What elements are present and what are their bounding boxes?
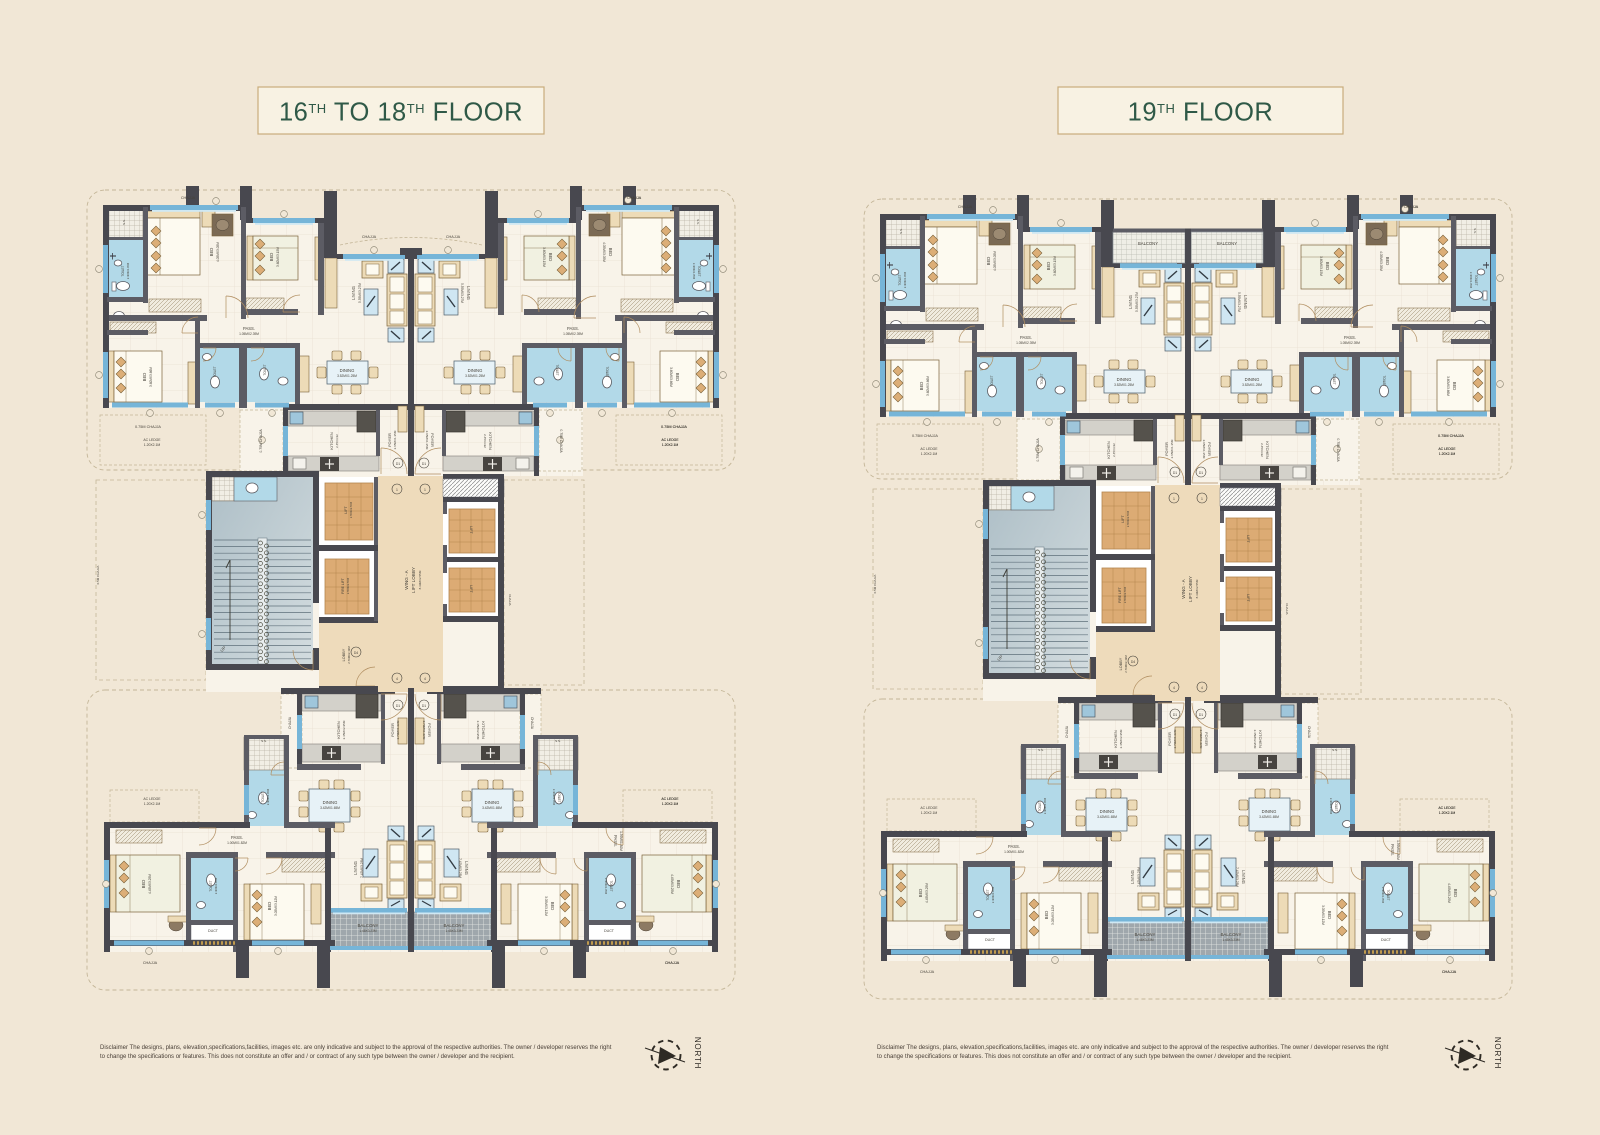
svg-text:1: 1 — [1201, 497, 1203, 501]
svg-text:2.40MX1.05M: 2.40MX1.05M — [903, 272, 907, 288]
svg-text:BED: BED — [548, 253, 553, 262]
svg-text:2.79MX1.22M: 2.79MX1.22M — [1199, 730, 1203, 749]
svg-text:BED: BED — [209, 248, 214, 257]
svg-text:1.20X2.1M: 1.20X2.1M — [921, 452, 938, 456]
svg-text:TOILET: TOILET — [1474, 274, 1478, 285]
svg-text:1.20X2.1M: 1.20X2.1M — [1439, 811, 1456, 815]
svg-text:4.05MX3.05M: 4.05MX3.05M — [602, 242, 606, 262]
svg-text:FOYER: FOYER — [1207, 442, 1212, 456]
svg-text:3.52MX1.25M: 3.52MX1.25M — [1242, 383, 1262, 387]
svg-text:KITCHEN: KITCHEN — [1258, 730, 1263, 748]
svg-text:TOILET: TOILET — [209, 880, 213, 891]
svg-text:FOYER: FOYER — [387, 433, 392, 447]
svg-text:TOILET: TOILET — [1040, 373, 1044, 384]
svg-text:DINING: DINING — [468, 368, 483, 373]
svg-text:BED: BED — [142, 373, 147, 382]
svg-text:8.39MX2.55M: 8.39MX2.55M — [418, 570, 422, 589]
svg-text:LIVING: LIVING — [1243, 295, 1248, 309]
svg-text:LIVING: LIVING — [464, 861, 469, 875]
svg-text:AC LEDGE: AC LEDGE — [661, 797, 679, 801]
svg-text:S.S.: S.S. — [1473, 228, 1477, 234]
svg-text:LIFT LOBBY: LIFT LOBBY — [1188, 576, 1193, 602]
svg-text:BALCONY: BALCONY — [1135, 932, 1156, 937]
svg-text:PASS.: PASS. — [1020, 335, 1032, 340]
svg-text:1.05MX2.39M: 1.05MX2.39M — [1340, 341, 1360, 345]
svg-text:2.65MX1.35M: 2.65MX1.35M — [1202, 440, 1206, 459]
svg-text:BALCONY: BALCONY — [1221, 932, 1242, 937]
svg-text:1.48X3.23M: 1.48X3.23M — [1136, 938, 1154, 942]
svg-text:DINING: DINING — [485, 800, 500, 805]
svg-text:4.05MX3.05M: 4.05MX3.05M — [216, 242, 220, 262]
svg-text:TOILET: TOILET — [213, 366, 217, 377]
svg-text:BED: BED — [608, 248, 613, 257]
svg-text:2.45X3.92: 2.45X3.92 — [1260, 443, 1264, 457]
svg-text:BED: BED — [986, 257, 991, 266]
svg-text:CHAJJA: CHAJJA — [143, 961, 158, 965]
svg-text:3.42MX1.65M: 3.42MX1.65M — [1259, 815, 1279, 819]
svg-text:4.05MX3.05M: 4.05MX3.05M — [993, 251, 997, 271]
svg-text:3.05MX3.12M: 3.05MX3.12M — [1321, 905, 1325, 925]
svg-text:1.00MX1.82M: 1.00MX1.82M — [227, 841, 247, 845]
svg-text:1.05MX2.39M: 1.05MX2.39M — [1016, 341, 1036, 345]
svg-text:PASS.: PASS. — [567, 326, 579, 331]
svg-text:D4: D4 — [354, 651, 358, 655]
svg-text:1.48X3.23M: 1.48X3.23M — [1222, 938, 1240, 942]
svg-text:D1: D1 — [1173, 471, 1177, 475]
svg-text:BED: BED — [269, 253, 274, 262]
svg-text:TOILET: TOILET — [609, 880, 613, 891]
svg-text:4.45MX3.25M: 4.45MX3.25M — [1447, 883, 1451, 903]
svg-text:2.55MX2.55M: 2.55MX2.55M — [346, 578, 350, 594]
svg-text:LIFT: LIFT — [1121, 515, 1125, 523]
svg-text:0.75M CHAJJA: 0.75M CHAJJA — [135, 425, 161, 429]
svg-text:7.42MX3.23M: 7.42MX3.23M — [1235, 867, 1239, 887]
svg-text:2.79MX1.22M: 2.79MX1.22M — [396, 720, 400, 739]
svg-text:BED: BED — [918, 889, 923, 898]
svg-text:WING - A: WING - A — [404, 569, 409, 589]
svg-text:AC LEDGE: AC LEDGE — [143, 797, 161, 801]
svg-text:7.42MX3.23M: 7.42MX3.23M — [360, 858, 364, 878]
svg-text:CHAJJA: CHAJJA — [1285, 603, 1289, 614]
svg-text:FOYER: FOYER — [427, 723, 432, 737]
svg-text:DUCT: DUCT — [208, 929, 219, 933]
svg-text:D1: D1 — [1199, 713, 1203, 717]
svg-text:0.75M CHAJJA: 0.75M CHAJJA — [661, 425, 687, 429]
svg-text:0.75M CHAJJA: 0.75M CHAJJA — [1336, 438, 1340, 462]
svg-text:2.79MX2.19M: 2.79MX2.19M — [1124, 655, 1128, 673]
svg-text:AC LEDGE: AC LEDGE — [143, 438, 161, 442]
svg-text:3.60MX3.66M: 3.60MX3.66M — [669, 367, 673, 387]
svg-text:PASS.: PASS. — [613, 835, 618, 847]
svg-text:LIVING: LIVING — [1128, 295, 1133, 309]
svg-text:1.59MX1.82M: 1.59MX1.82M — [619, 831, 623, 851]
svg-text:TOILET: TOILET — [1332, 373, 1336, 384]
svg-text:0.75M CHAJJA: 0.75M CHAJJA — [912, 434, 938, 438]
svg-text:TOILET: TOILET — [557, 791, 561, 802]
svg-text:D4: D4 — [1131, 660, 1135, 664]
svg-text:0.5M CHAJJA: 0.5M CHAJJA — [96, 566, 100, 585]
svg-text:D1: D1 — [1199, 471, 1203, 475]
svg-text:FOYER: FOYER — [1167, 732, 1172, 746]
svg-text:0.75M CHAJJA: 0.75M CHAJJA — [1036, 438, 1040, 462]
svg-text:KITCHEN: KITCHEN — [1113, 730, 1118, 748]
svg-text:2.45MX2.95M: 2.45MX2.95M — [1119, 729, 1123, 748]
svg-text:FIRE LIFT: FIRE LIFT — [341, 578, 345, 594]
svg-text:S.S.: S.S. — [899, 228, 903, 234]
svg-text:BED: BED — [1385, 257, 1390, 266]
svg-text:1.59MX1.82M: 1.59MX1.82M — [1396, 840, 1400, 860]
svg-text:1.20X2.1M: 1.20X2.1M — [662, 802, 679, 806]
svg-text:4.45MX3.25M: 4.45MX3.25M — [148, 874, 152, 894]
svg-text:LIFT: LIFT — [469, 585, 473, 593]
svg-text:TOILET: TOILET — [555, 364, 559, 375]
svg-text:CHAJJA: CHAJJA — [1065, 725, 1069, 738]
svg-text:AC LEDGE: AC LEDGE — [920, 447, 938, 451]
svg-text:S.S.: S.S. — [1038, 748, 1044, 752]
svg-text:2.45MX2.95M: 2.45MX2.95M — [476, 721, 480, 740]
svg-text:DINING: DINING — [1100, 809, 1115, 814]
svg-text:7.42MX3.23M: 7.42MX3.23M — [1137, 867, 1141, 887]
svg-text:3.52MX1.25M: 3.52MX1.25M — [465, 374, 485, 378]
svg-text:BALCONY: BALCONY — [358, 923, 379, 928]
svg-text:DINING: DINING — [1262, 809, 1277, 814]
svg-text:5.55MX3.27M: 5.55MX3.27M — [460, 283, 464, 303]
svg-text:3.05MX3.12M: 3.05MX3.12M — [274, 896, 278, 916]
svg-text:5.55MX3.27M: 5.55MX3.27M — [1237, 292, 1241, 312]
svg-text:1.20X2.1M: 1.20X2.1M — [144, 443, 161, 447]
svg-text:WING - A: WING - A — [1181, 578, 1186, 598]
svg-text:3.52MX1.25M: 3.52MX1.25M — [337, 374, 357, 378]
svg-text:BED: BED — [267, 902, 272, 911]
svg-text:0.5M CHAJJA: 0.5M CHAJJA — [873, 575, 877, 594]
svg-text:4: 4 — [424, 677, 426, 681]
svg-text:CHAJJA: CHAJJA — [958, 205, 973, 209]
svg-text:3.52MX1.25M: 3.52MX1.25M — [1114, 383, 1134, 387]
svg-text:2.45X3.92: 2.45X3.92 — [1112, 443, 1116, 457]
svg-text:2.55MX2.55M: 2.55MX2.55M — [1126, 511, 1130, 527]
svg-text:2.40MX1.05M: 2.40MX1.05M — [126, 263, 130, 279]
svg-text:BED: BED — [919, 382, 924, 391]
svg-text:NORTH: NORTH — [1493, 1037, 1502, 1069]
svg-text:BED: BED — [675, 373, 680, 382]
svg-text:1.20X2.1M: 1.20X2.1M — [144, 802, 161, 806]
svg-text:2.79MX2.19M: 2.79MX2.19M — [347, 646, 351, 664]
svg-text:CHAJJA: CHAJJA — [665, 961, 680, 965]
svg-text:FOYER: FOYER — [390, 723, 395, 737]
svg-text:KITCHEN: KITCHEN — [488, 432, 493, 450]
svg-text:BED: BED — [550, 902, 555, 911]
svg-text:3.60MX3.66M: 3.60MX3.66M — [149, 367, 153, 387]
svg-text:D1: D1 — [1173, 713, 1177, 717]
svg-text:2.40MX1.05M: 2.40MX1.05M — [214, 878, 218, 894]
svg-text:CHAJJA: CHAJJA — [1307, 726, 1311, 739]
svg-text:3.60MX3.15M: 3.60MX3.15M — [276, 247, 280, 267]
svg-text:BED: BED — [1327, 911, 1332, 920]
svg-text:KITCHEN: KITCHEN — [481, 721, 486, 739]
svg-text:BED: BED — [1044, 911, 1049, 920]
svg-text:BED: BED — [1453, 889, 1458, 898]
svg-text:2.45MX2.95M: 2.45MX2.95M — [1253, 730, 1257, 749]
svg-text:2.40MX1.05M: 2.40MX1.05M — [266, 789, 270, 805]
svg-text:2.65MX1.35M: 2.65MX1.35M — [425, 431, 429, 450]
svg-text:3.60MX3.66M: 3.60MX3.66M — [926, 376, 930, 396]
svg-text:AC LEDGE: AC LEDGE — [1438, 447, 1456, 451]
svg-text:KITCHEN: KITCHEN — [336, 721, 341, 739]
svg-text:S.S.: S.S. — [261, 739, 267, 743]
svg-text:TOILET: TOILET — [1038, 800, 1042, 811]
svg-text:3.42MX1.65M: 3.42MX1.65M — [1097, 815, 1117, 819]
svg-text:S.S.: S.S. — [696, 219, 700, 225]
svg-text:2.45MX2.95M: 2.45MX2.95M — [342, 720, 346, 739]
svg-text:2.79MX1.22M: 2.79MX1.22M — [422, 721, 426, 740]
svg-text:LIFT: LIFT — [1246, 594, 1250, 602]
svg-text:2.40MX1.05M: 2.40MX1.05M — [552, 789, 556, 805]
svg-text:3.05MX3.12M: 3.05MX3.12M — [1051, 905, 1055, 925]
svg-text:4: 4 — [396, 677, 398, 681]
svg-text:PASS.: PASS. — [231, 835, 243, 840]
svg-text:S.S.: S.S. — [555, 739, 561, 743]
svg-text:DUCT: DUCT — [1381, 938, 1392, 942]
svg-text:BED: BED — [1325, 262, 1330, 271]
svg-text:0.75M CHAJJA: 0.75M CHAJJA — [1438, 434, 1464, 438]
svg-text:D1: D1 — [422, 462, 426, 466]
svg-text:BED: BED — [141, 880, 146, 889]
svg-text:LIVING: LIVING — [466, 286, 471, 300]
svg-text:3.42MX1.65M: 3.42MX1.65M — [320, 806, 340, 810]
svg-text:TOILET: TOILET — [605, 366, 609, 377]
svg-text:1.48X3.23M: 1.48X3.23M — [359, 929, 377, 933]
svg-text:7.42MX3.23M: 7.42MX3.23M — [458, 858, 462, 878]
svg-text:3.05MX3.12M: 3.05MX3.12M — [544, 896, 548, 916]
svg-text:4.45MX3.25M: 4.45MX3.25M — [670, 874, 674, 894]
svg-text:2.45X3.92: 2.45X3.92 — [483, 434, 487, 448]
svg-text:S.S.: S.S. — [1332, 748, 1338, 752]
svg-text:5.55MX3.27M: 5.55MX3.27M — [1135, 292, 1139, 312]
svg-text:CHAJJA: CHAJJA — [530, 717, 534, 730]
svg-text:0.75M CHAJJA: 0.75M CHAJJA — [259, 429, 263, 453]
svg-text:2.40MX1.05M: 2.40MX1.05M — [604, 878, 608, 894]
svg-text:2.40MX1.05M: 2.40MX1.05M — [991, 887, 995, 903]
svg-text:NORTH: NORTH — [693, 1037, 702, 1069]
svg-text:TOILET: TOILET — [121, 265, 125, 276]
svg-text:LIVING: LIVING — [1241, 870, 1246, 884]
svg-text:2.40MX1.05M: 2.40MX1.05M — [1329, 798, 1333, 814]
svg-text:TOILET: TOILET — [1386, 889, 1390, 900]
svg-text:CHAJJA: CHAJJA — [181, 196, 196, 200]
svg-text:PASS.: PASS. — [1344, 335, 1356, 340]
svg-text:Disclaimer The designs, plans,: Disclaimer The designs, plans, elevation… — [100, 1045, 612, 1051]
svg-text:FIRE LIFT: FIRE LIFT — [1118, 587, 1122, 603]
svg-text:1.48X3.23M: 1.48X3.23M — [445, 929, 463, 933]
svg-text:KITCHEN: KITCHEN — [1265, 441, 1270, 459]
svg-text:1.20X2.1M: 1.20X2.1M — [1439, 452, 1456, 456]
svg-text:DINING: DINING — [1245, 377, 1260, 382]
svg-text:2.40MX1.05M: 2.40MX1.05M — [1043, 798, 1047, 814]
svg-text:1: 1 — [424, 488, 426, 492]
svg-text:2.65MX1.35M: 2.65MX1.35M — [1170, 439, 1174, 458]
svg-text:3.60MX3.15M: 3.60MX3.15M — [1053, 256, 1057, 276]
svg-text:LIFT: LIFT — [344, 506, 348, 514]
svg-text:3.60MX3.15M: 3.60MX3.15M — [1319, 256, 1323, 276]
svg-text:PASS.: PASS. — [1390, 844, 1395, 856]
svg-text:AC LEDGE: AC LEDGE — [1438, 806, 1456, 810]
svg-text:KITCHEN: KITCHEN — [1106, 441, 1111, 459]
svg-text:LIVING: LIVING — [351, 286, 356, 300]
svg-text:1.05MX2.39M: 1.05MX2.39M — [563, 332, 583, 336]
svg-text:TOILET: TOILET — [263, 364, 267, 375]
svg-text:CHAJJA: CHAJJA — [1404, 205, 1419, 209]
svg-text:FOYER: FOYER — [430, 433, 435, 447]
svg-text:LIFT LOBBY: LIFT LOBBY — [411, 567, 416, 593]
svg-text:TOILET: TOILET — [697, 265, 701, 276]
svg-text:KITCHEN: KITCHEN — [329, 432, 334, 450]
svg-text:BALCONY: BALCONY — [444, 923, 465, 928]
svg-text:CHAJJA: CHAJJA — [1442, 970, 1457, 974]
svg-text:2.55MX2.55M: 2.55MX2.55M — [1123, 587, 1127, 603]
svg-text:0.75M CHAJJA: 0.75M CHAJJA — [559, 429, 563, 453]
svg-text:FOYER: FOYER — [1204, 732, 1209, 746]
svg-text:LIVING: LIVING — [353, 861, 358, 875]
svg-text:1.20X2.1M: 1.20X2.1M — [921, 811, 938, 815]
svg-text:CHAJJA: CHAJJA — [288, 716, 292, 729]
svg-text:DUCT: DUCT — [985, 938, 996, 942]
svg-text:CHAJJA: CHAJJA — [446, 235, 461, 239]
svg-text:8.39MX2.55M: 8.39MX2.55M — [1195, 579, 1199, 598]
svg-text:1: 1 — [1173, 497, 1175, 501]
svg-text:2.65MX1.35M: 2.65MX1.35M — [393, 430, 397, 449]
svg-text:1.05MX2.39M: 1.05MX2.39M — [239, 332, 259, 336]
svg-text:D1: D1 — [396, 462, 400, 466]
svg-text:3.60MX3.15M: 3.60MX3.15M — [542, 247, 546, 267]
svg-text:BED: BED — [1046, 262, 1051, 271]
svg-text:LIFT: LIFT — [469, 526, 473, 534]
svg-text:TOILET: TOILET — [261, 791, 265, 802]
svg-text:TOILET: TOILET — [1334, 800, 1338, 811]
svg-text:LOBBY: LOBBY — [1119, 657, 1123, 670]
svg-text:DINING: DINING — [340, 368, 355, 373]
svg-text:TOILET: TOILET — [898, 274, 902, 285]
svg-text:2.55MX2.55M: 2.55MX2.55M — [349, 502, 353, 518]
svg-text:CHAJJA: CHAJJA — [362, 235, 377, 239]
svg-text:BED: BED — [1452, 382, 1457, 391]
svg-text:LIVING: LIVING — [1130, 870, 1135, 884]
svg-text:D1: D1 — [396, 704, 400, 708]
svg-text:LOBBY: LOBBY — [342, 648, 346, 661]
svg-text:TOILET: TOILET — [986, 889, 990, 900]
svg-text:2.79MX1.22M: 2.79MX1.22M — [1173, 729, 1177, 748]
svg-text:2.45X3.92: 2.45X3.92 — [335, 434, 339, 448]
svg-text:BALCONY: BALCONY — [1138, 241, 1158, 246]
svg-text:PASS.: PASS. — [243, 326, 255, 331]
svg-text:BALCONY: BALCONY — [1217, 241, 1237, 246]
svg-text:AC LEDGE: AC LEDGE — [661, 438, 679, 442]
svg-text:LIFT: LIFT — [1246, 535, 1250, 543]
svg-text:to change the specifications o: to change the specifications or features… — [877, 1054, 1292, 1060]
svg-text:DINING: DINING — [323, 800, 338, 805]
svg-text:1.20X2.1M: 1.20X2.1M — [662, 443, 679, 447]
svg-text:DUCT: DUCT — [604, 929, 615, 933]
svg-text:CHAJJA: CHAJJA — [920, 970, 935, 974]
svg-text:DINING: DINING — [1117, 377, 1132, 382]
svg-text:D1: D1 — [422, 704, 426, 708]
svg-text:CHAJJA: CHAJJA — [627, 196, 642, 200]
svg-text:4.45MX3.25M: 4.45MX3.25M — [925, 883, 929, 903]
svg-text:Disclaimer The designs, plans,: Disclaimer The designs, plans, elevation… — [877, 1045, 1389, 1051]
svg-text:2.40MX1.05M: 2.40MX1.05M — [1381, 887, 1385, 903]
svg-text:5.55MX3.27M: 5.55MX3.27M — [358, 283, 362, 303]
svg-text:PASS.: PASS. — [1008, 844, 1020, 849]
svg-text:2.40MX1.05M: 2.40MX1.05M — [1469, 272, 1473, 288]
svg-text:TOILET: TOILET — [990, 375, 994, 386]
svg-text:3.42MX1.65M: 3.42MX1.65M — [482, 806, 502, 810]
svg-text:2.40MX1.05M: 2.40MX1.05M — [692, 263, 696, 279]
svg-text:3.60MX3.66M: 3.60MX3.66M — [1446, 376, 1450, 396]
svg-text:CHAJJA: CHAJJA — [508, 594, 512, 605]
svg-text:4: 4 — [1173, 686, 1175, 690]
svg-text:1: 1 — [396, 488, 398, 492]
svg-text:BED: BED — [676, 880, 681, 889]
svg-text:S.S.: S.S. — [122, 219, 126, 225]
svg-text:4.05MX3.05M: 4.05MX3.05M — [1379, 251, 1383, 271]
svg-text:TOILET: TOILET — [1382, 375, 1386, 386]
svg-text:19TH FLOOR: 19TH FLOOR — [1128, 99, 1274, 127]
svg-text:1.00MX1.82M: 1.00MX1.82M — [1004, 850, 1024, 854]
svg-text:to change the specifications o: to change the specifications or features… — [100, 1054, 515, 1060]
svg-text:FOYER: FOYER — [1164, 442, 1169, 456]
svg-text:AC LEDGE: AC LEDGE — [920, 806, 938, 810]
svg-text:4: 4 — [1201, 686, 1203, 690]
